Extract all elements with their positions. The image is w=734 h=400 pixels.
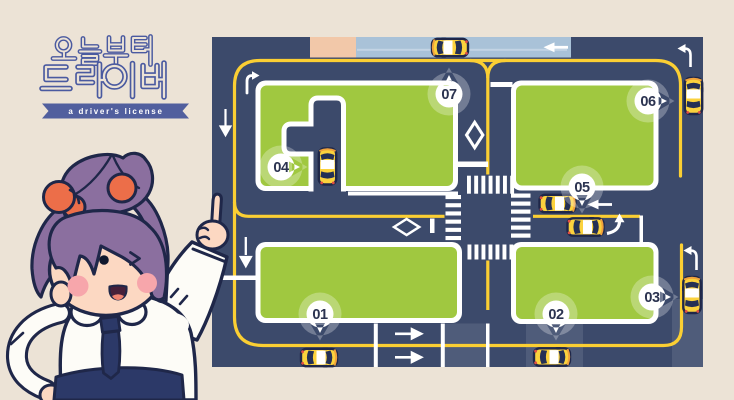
svg-text:a driver's license: a driver's license [68, 107, 163, 116]
svg-text:03: 03 [644, 290, 660, 306]
svg-text:07: 07 [441, 87, 457, 103]
svg-text:02: 02 [548, 307, 564, 323]
svg-text:06: 06 [640, 94, 656, 110]
svg-text:05: 05 [574, 180, 590, 196]
svg-text:01: 01 [312, 307, 328, 323]
svg-text:04: 04 [273, 160, 289, 176]
